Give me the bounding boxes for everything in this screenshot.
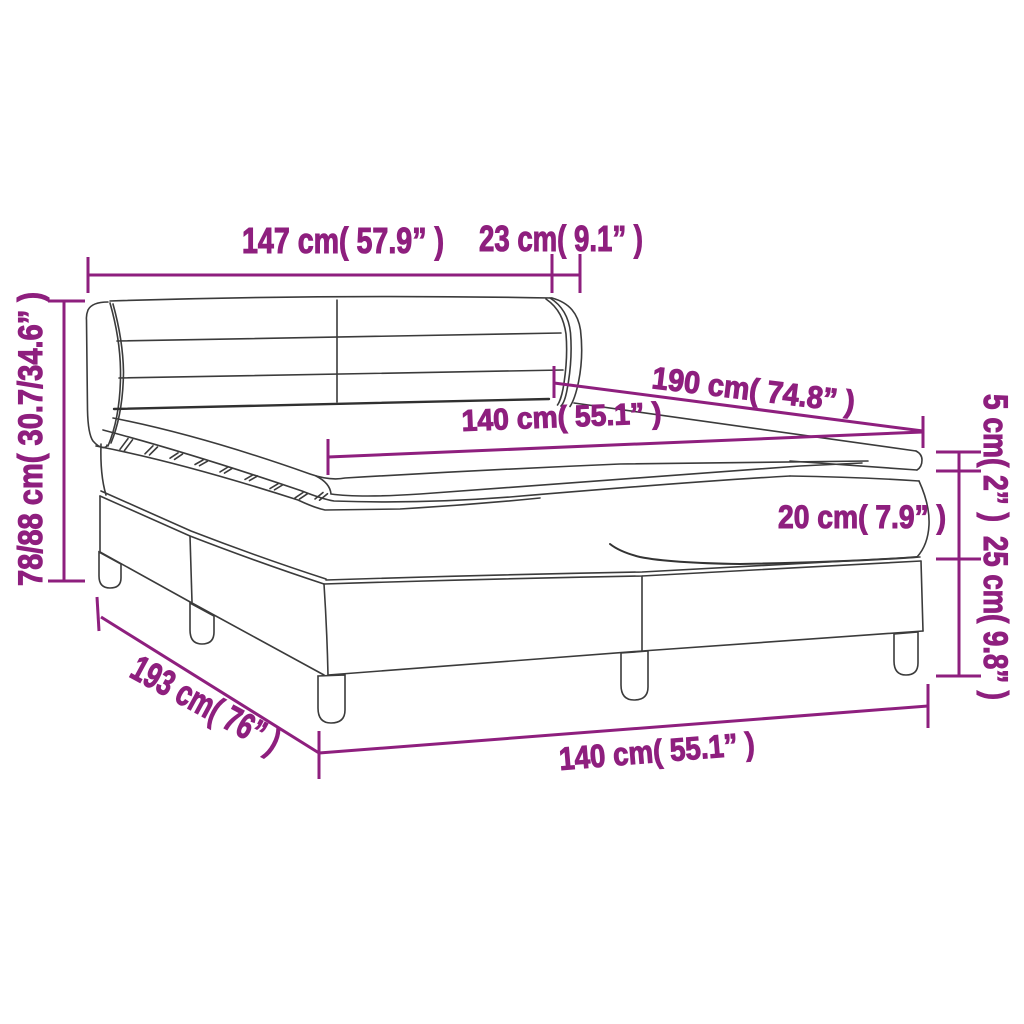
svg-text:78/88 cm( 30.7/34.6” ): 78/88 cm( 30.7/34.6” ) [12, 292, 50, 586]
svg-text:25 cm( 9.8” ): 25 cm( 9.8” ) [976, 536, 1014, 700]
svg-text:147 cm( 57.9” ): 147 cm( 57.9” ) [242, 220, 444, 261]
svg-text:5 cm( 2” ): 5 cm( 2” ) [976, 394, 1014, 522]
svg-text:23 cm( 9.1” ): 23 cm( 9.1” ) [479, 218, 643, 259]
svg-text:20 cm( 7.9” ): 20 cm( 7.9” ) [778, 499, 946, 535]
